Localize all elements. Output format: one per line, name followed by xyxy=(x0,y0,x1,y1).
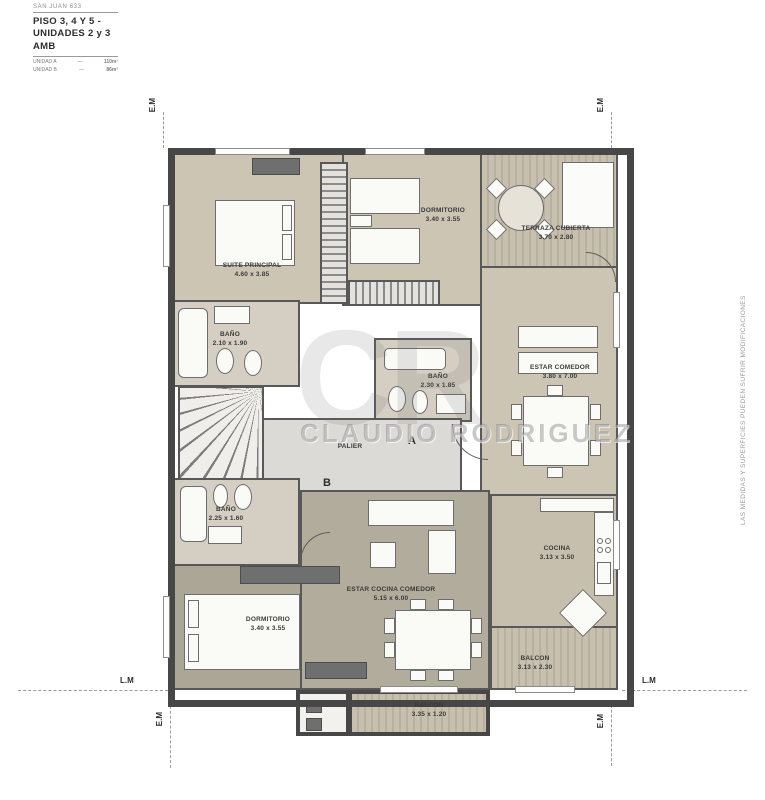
bano-inferior-name: BAÑO xyxy=(216,506,236,513)
bano-central-name: BAÑO xyxy=(428,373,448,380)
burner xyxy=(605,547,611,553)
wardrobe-dormitorio xyxy=(240,566,340,584)
label-bano-central: BAÑO 2.30 x 1.85 xyxy=(408,372,468,391)
estar-comedor-dims: 3.80 x 7.00 xyxy=(543,373,578,380)
lm-dash-right xyxy=(622,690,747,691)
burner xyxy=(597,547,603,553)
window-estar-right xyxy=(613,292,620,348)
chair xyxy=(511,404,522,420)
chair xyxy=(511,440,522,456)
parrilla-bench xyxy=(562,162,614,228)
project-name: SAN JUAN 633 xyxy=(33,4,118,10)
label-suite-principal: SUITE PRINCIPAL 4.60 x 3.85 xyxy=(207,261,297,280)
bidet xyxy=(412,390,428,414)
lm-dash-left xyxy=(18,690,168,691)
terraza-dims: 3.70 x 2.80 xyxy=(539,234,574,241)
window-suite-left xyxy=(163,205,170,267)
unit-b-sep: — xyxy=(79,67,84,75)
terraza-name: TERRAZA CUBIERTA xyxy=(522,225,591,232)
em-dash-bottom-right xyxy=(611,700,612,766)
window-dormitorio-bottom-left xyxy=(163,596,170,658)
chair xyxy=(410,670,426,681)
unit-a-sep: — xyxy=(78,59,83,67)
tv-unit xyxy=(305,662,367,679)
burner xyxy=(605,538,611,544)
em-marker-top-left: E.M xyxy=(148,98,157,112)
chair xyxy=(547,385,563,396)
em-dash-top-right xyxy=(611,112,612,148)
plan-title-line2: UNIDADES 2 y 3 AMB xyxy=(33,28,118,53)
estar-cocina-dims: 5.15 x 6.00 xyxy=(374,595,409,602)
chair xyxy=(471,642,482,658)
room-lavadero xyxy=(296,690,350,736)
unit-marker-b: B xyxy=(323,477,331,489)
balcon-right-dims: 3.13 x 2.30 xyxy=(518,664,553,671)
single-bed xyxy=(350,228,420,264)
bano-suite-name: BAÑO xyxy=(220,331,240,338)
cocina-name: COCINA xyxy=(544,545,571,552)
bano-inferior-dims: 2.25 x 1.60 xyxy=(209,515,244,522)
stairs-winder xyxy=(178,386,264,480)
sink xyxy=(214,306,250,324)
wardrobe-suite xyxy=(252,158,300,175)
estar-comedor-name: ESTAR COMEDOR xyxy=(530,364,590,371)
unit-b-name: UNIDAD B xyxy=(33,67,57,75)
disclaimer-note: LAS MEDIDAS Y SUPERFICIES PUEDEN SUFRIR … xyxy=(740,285,747,525)
stairs-shaft xyxy=(320,162,348,304)
dormitorio-bottom-name: DORMITORIO xyxy=(246,616,290,623)
title-block: SAN JUAN 633 PISO 3, 4 Y 5 - UNIDADES 2 … xyxy=(33,4,118,74)
bathtub xyxy=(384,348,446,370)
window-suite-top xyxy=(215,148,290,155)
nightstand xyxy=(350,215,372,227)
chair xyxy=(438,670,454,681)
label-bano-suite: BAÑO 2.10 x 1.90 xyxy=(200,330,260,349)
plan-title-line1: PISO 3, 4 Y 5 - xyxy=(33,16,118,28)
bidet xyxy=(216,348,234,374)
label-terraza: TERRAZA CUBIERTA 3.70 x 2.80 xyxy=(514,224,598,243)
unit-a-area: 110m² xyxy=(104,59,118,67)
toilet xyxy=(244,350,262,376)
label-bano-inferior: BAÑO 2.25 x 1.60 xyxy=(196,505,256,524)
bano-suite-dims: 2.10 x 1.90 xyxy=(213,340,248,347)
label-palier: PALIER xyxy=(320,442,380,451)
pillow xyxy=(282,205,292,231)
balcon-bottom-dims: 3.35 x 1.20 xyxy=(412,711,447,718)
label-estar-comedor: ESTAR COMEDOR 3.80 x 7.00 xyxy=(515,363,605,382)
unit-row-b: UNIDAD B — 86m² xyxy=(33,67,118,75)
dormitorio-top-name: DORMITORIO xyxy=(421,207,465,214)
balcon-bottom-name: BALCON xyxy=(414,702,443,709)
title-divider-bottom xyxy=(33,56,118,57)
sofa xyxy=(368,500,454,526)
burner xyxy=(597,538,603,544)
pillow xyxy=(282,234,292,260)
dining-table xyxy=(395,610,471,670)
laundry-sink xyxy=(306,718,322,731)
lm-marker-left: L.M xyxy=(120,676,134,685)
label-balcon-right: BALCON 3.13 x 2.30 xyxy=(503,654,567,673)
floor-plan-canvas: SAN JUAN 633 PISO 3, 4 Y 5 - UNIDADES 2 … xyxy=(0,0,765,800)
kitchen-sink xyxy=(597,562,611,584)
em-dash-bottom-left xyxy=(170,696,171,768)
pillow xyxy=(188,634,199,662)
chair xyxy=(471,618,482,634)
em-marker-top-right: E.M xyxy=(596,98,605,112)
window-dormitorio-top xyxy=(365,148,425,155)
dining-table xyxy=(523,396,589,466)
lm-marker-right: L.M xyxy=(642,676,656,685)
cocina-dims: 3.13 x 3.50 xyxy=(540,554,575,561)
chair xyxy=(384,618,395,634)
label-dormitorio-bottom: DORMITORIO 3.40 x 3.55 xyxy=(223,615,313,634)
label-estar-cocina-comedor: ESTAR COCINA COMEDOR 5.15 x 6.00 xyxy=(333,585,449,604)
chair xyxy=(547,467,563,478)
balcon-right-name: BALCON xyxy=(520,655,549,662)
window-cocina-right xyxy=(613,520,620,570)
sofa xyxy=(518,326,598,348)
em-marker-bottom-left: E.M xyxy=(155,712,164,726)
dormitorio-bottom-dims: 3.40 x 3.55 xyxy=(251,625,286,632)
bano-central-dims: 2.30 x 1.85 xyxy=(421,382,456,389)
chair xyxy=(590,440,601,456)
suite-dims: 4.60 x 3.85 xyxy=(235,271,270,278)
label-cocina: COCINA 3.13 x 3.50 xyxy=(522,544,592,563)
door-balcon-bottom xyxy=(380,686,458,693)
armchair xyxy=(370,542,396,568)
em-dash-top-left xyxy=(163,112,164,148)
pillow xyxy=(188,600,199,628)
unit-a-name: UNIDAD A xyxy=(33,59,57,67)
laundry-sink xyxy=(306,700,322,713)
title-divider-top xyxy=(33,12,118,13)
chair xyxy=(384,642,395,658)
sink xyxy=(208,526,242,544)
toilet xyxy=(388,386,406,412)
kitchen-counter-top xyxy=(540,498,614,512)
dormitorio-top-dims: 3.40 x 3.55 xyxy=(426,216,461,223)
em-marker-bottom-right: E.M xyxy=(596,714,605,728)
unit-b-area: 86m² xyxy=(106,67,118,75)
label-dormitorio-top: DORMITORIO 3.40 x 3.55 xyxy=(398,206,488,225)
estar-cocina-name: ESTAR COCINA COMEDOR xyxy=(347,586,436,593)
chair xyxy=(590,404,601,420)
sink xyxy=(436,394,466,414)
door-balcon-right xyxy=(515,686,575,693)
stairs-passage xyxy=(348,280,440,306)
palier-name: PALIER xyxy=(338,443,363,450)
unit-marker-a: A xyxy=(408,435,416,447)
unit-row-a: UNIDAD A — 110m² xyxy=(33,59,118,67)
label-balcon-bottom: BALCON 3.35 x 1.20 xyxy=(393,701,465,720)
suite-name: SUITE PRINCIPAL xyxy=(223,262,282,269)
sofa-chaise xyxy=(428,530,456,574)
